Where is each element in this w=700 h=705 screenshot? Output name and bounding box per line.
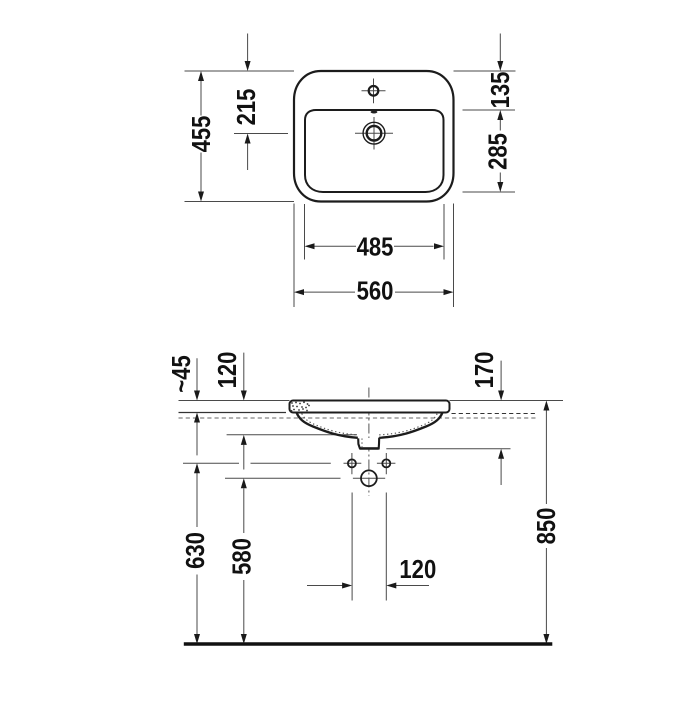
svg-text:560: 560	[357, 277, 394, 306]
svg-text:850: 850	[532, 508, 561, 545]
svg-text:455: 455	[187, 116, 216, 153]
svg-text:120: 120	[399, 556, 436, 585]
svg-text:135: 135	[486, 72, 515, 109]
svg-text:170: 170	[470, 352, 499, 389]
svg-text:~45: ~45	[167, 355, 196, 392]
svg-text:215: 215	[232, 89, 261, 126]
svg-text:120: 120	[213, 352, 242, 389]
svg-text:285: 285	[484, 133, 513, 170]
svg-text:485: 485	[357, 233, 394, 262]
svg-text:630: 630	[181, 532, 210, 569]
svg-text:580: 580	[228, 538, 257, 575]
